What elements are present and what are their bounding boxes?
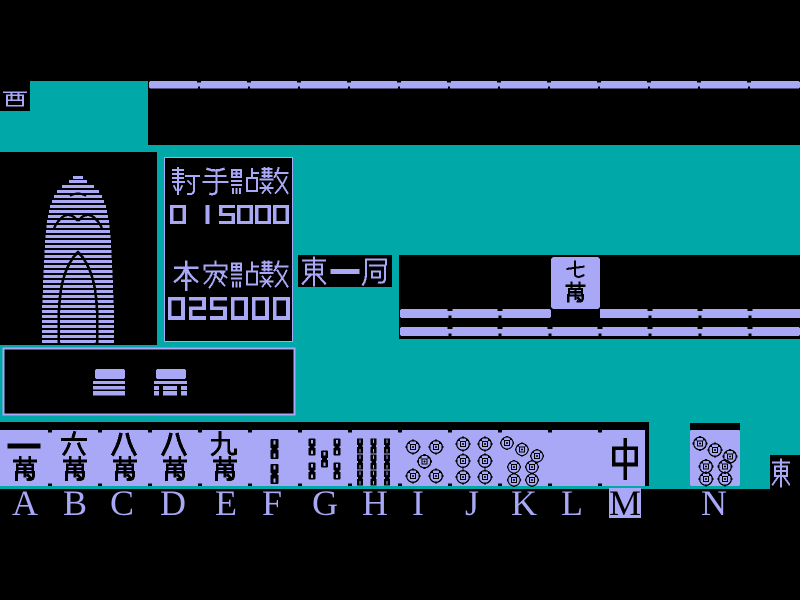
svg-text:E: E bbox=[215, 483, 237, 523]
svg-text:J: J bbox=[465, 483, 479, 523]
svg-text:B: B bbox=[63, 483, 87, 523]
svg-text:H: H bbox=[362, 483, 388, 523]
svg-text:A: A bbox=[12, 483, 38, 523]
svg-text:I: I bbox=[412, 483, 424, 523]
svg-text:N: N bbox=[701, 483, 727, 523]
svg-text:F: F bbox=[262, 483, 282, 523]
svg-text:M: M bbox=[609, 483, 641, 523]
svg-text:K: K bbox=[511, 483, 537, 523]
svg-text:D: D bbox=[160, 483, 186, 523]
svg-text:G: G bbox=[312, 483, 338, 523]
svg-text:L: L bbox=[561, 483, 583, 523]
svg-text:C: C bbox=[110, 483, 134, 523]
